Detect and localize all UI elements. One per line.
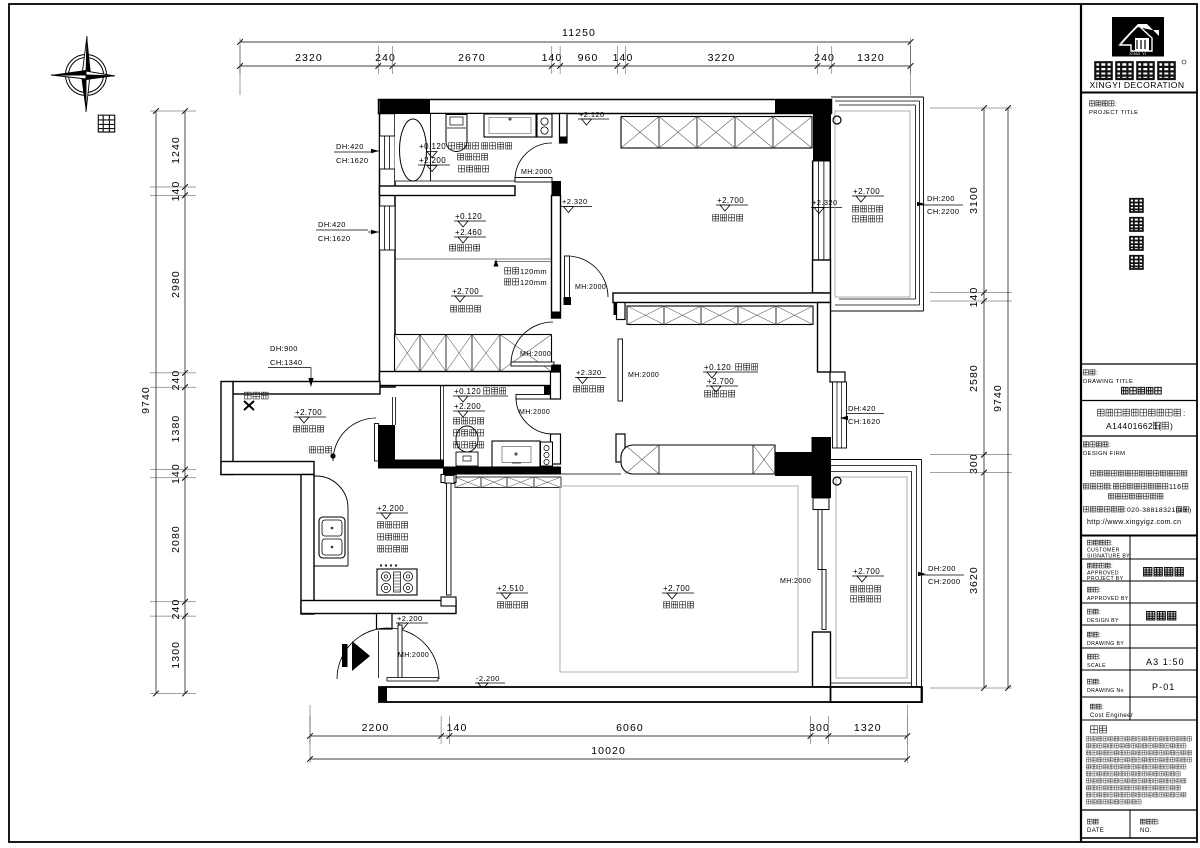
svg-text:PROJECT BY: PROJECT BY — [1087, 576, 1124, 582]
svg-text::: : — [1109, 442, 1111, 449]
svg-text::: : — [1111, 541, 1113, 547]
svg-text:): ) — [1170, 421, 1173, 431]
svg-text:+0.120: +0.120 — [419, 142, 446, 151]
svg-text:3620: 3620 — [968, 566, 980, 594]
svg-text:2320: 2320 — [295, 52, 323, 64]
svg-text:140: 140 — [447, 722, 468, 734]
svg-text::: : — [1183, 409, 1186, 418]
svg-text:DH:900: DH:900 — [270, 344, 298, 353]
svg-text:9740: 9740 — [992, 384, 1004, 412]
svg-text:1240: 1240 — [170, 136, 182, 164]
svg-text:CH:1620: CH:1620 — [848, 417, 880, 426]
svg-text:+2.320: +2.320 — [562, 197, 588, 206]
svg-text::: : — [1099, 633, 1101, 639]
svg-text:300: 300 — [809, 722, 830, 734]
svg-text:+2.700: +2.700 — [295, 408, 322, 417]
svg-text:140: 140 — [613, 52, 634, 64]
svg-text:MH:2000: MH:2000 — [398, 652, 429, 659]
svg-text:A3 1:50: A3 1:50 — [1146, 657, 1185, 667]
svg-text::: : — [1096, 370, 1098, 377]
svg-text:+0.120: +0.120 — [454, 387, 481, 396]
svg-text:+2.200: +2.200 — [397, 614, 423, 623]
svg-text:+0.120: +0.120 — [704, 363, 731, 372]
svg-text:11250: 11250 — [562, 27, 596, 39]
svg-text:+2.460: +2.460 — [455, 228, 482, 237]
svg-text:P-01: P-01 — [1152, 682, 1175, 692]
svg-text:1380: 1380 — [170, 415, 182, 443]
svg-text:020-38818321(10: 020-38818321(10 — [1127, 507, 1187, 514]
svg-text:): ) — [1189, 507, 1192, 514]
svg-text:+2.700: +2.700 — [717, 196, 744, 205]
svg-text:DRAWING BY: DRAWING BY — [1087, 641, 1124, 647]
svg-text:+2.700: +2.700 — [853, 567, 880, 576]
svg-text:140: 140 — [170, 463, 182, 484]
svg-text:MH:2000: MH:2000 — [628, 372, 659, 379]
svg-text:3220: 3220 — [708, 52, 736, 64]
svg-text:120mm: 120mm — [520, 278, 547, 287]
svg-text:116: 116 — [1169, 484, 1181, 491]
svg-text:+2.700: +2.700 — [707, 377, 734, 386]
svg-text:DESIGN FIRM: DESIGN FIRM — [1083, 451, 1125, 457]
svg-text:-2.200: -2.200 — [476, 674, 500, 683]
svg-text:DH:420: DH:420 — [318, 220, 346, 229]
svg-text::: : — [1099, 588, 1101, 594]
svg-text:6060: 6060 — [616, 722, 644, 734]
svg-text:+2.320: +2.320 — [576, 368, 602, 377]
svg-text::: : — [1111, 564, 1113, 570]
svg-text:MH:2000: MH:2000 — [575, 284, 606, 291]
svg-text:120mm: 120mm — [520, 267, 547, 276]
svg-text::: : — [1158, 820, 1160, 826]
svg-text::: : — [1099, 610, 1101, 616]
svg-text:9740: 9740 — [140, 386, 152, 414]
svg-text:SIGNATURE BY: SIGNATURE BY — [1087, 554, 1130, 560]
svg-text::: : — [1099, 655, 1101, 661]
svg-text::: : — [1124, 507, 1126, 514]
svg-text:+2.700: +2.700 — [663, 584, 690, 593]
svg-text:3100: 3100 — [968, 186, 980, 214]
svg-text:1300: 1300 — [170, 641, 182, 669]
svg-text:CH:1620: CH:1620 — [336, 156, 368, 165]
svg-text:DH:420: DH:420 — [848, 404, 876, 413]
svg-text:+2.320: +2.320 — [812, 198, 838, 207]
svg-text:+2.510: +2.510 — [497, 584, 524, 593]
svg-text:SCALE: SCALE — [1087, 663, 1106, 669]
svg-text:CH:2200: CH:2200 — [927, 207, 959, 216]
svg-text:DRAWING TITLE: DRAWING TITLE — [1083, 379, 1133, 385]
svg-text:DESIGN BY: DESIGN BY — [1087, 618, 1119, 624]
svg-text:2980: 2980 — [170, 270, 182, 298]
svg-text:CH:1340: CH:1340 — [270, 358, 302, 367]
svg-text:MH:2000: MH:2000 — [780, 578, 811, 585]
svg-text:+2.700: +2.700 — [853, 187, 880, 196]
svg-text::: : — [1115, 101, 1117, 108]
svg-text:+2.200: +2.200 — [419, 156, 446, 165]
svg-text:300: 300 — [968, 453, 980, 474]
svg-text:MH:2000: MH:2000 — [519, 409, 550, 416]
svg-text:960: 960 — [578, 52, 599, 64]
svg-text:+2.120: +2.120 — [579, 110, 605, 119]
svg-text:DH:200: DH:200 — [928, 564, 956, 573]
svg-text:APPROVED BY: APPROVED BY — [1087, 596, 1129, 602]
svg-text::: : — [1110, 484, 1112, 491]
svg-text:http://www.xingyigz.com.cn: http://www.xingyigz.com.cn — [1087, 519, 1181, 526]
svg-text:+2.200: +2.200 — [377, 504, 404, 513]
svg-text:2670: 2670 — [458, 52, 486, 64]
svg-text:140: 140 — [170, 181, 182, 202]
svg-text:CH:1620: CH:1620 — [318, 234, 350, 243]
svg-text:1320: 1320 — [857, 52, 885, 64]
svg-text:2200: 2200 — [362, 722, 390, 734]
svg-text:DRAWING No: DRAWING No — [1087, 688, 1124, 694]
svg-text::: : — [1102, 705, 1104, 711]
svg-text:2580: 2580 — [968, 364, 980, 392]
svg-text:10020: 10020 — [591, 745, 626, 757]
svg-text:140: 140 — [968, 287, 980, 308]
svg-text:DH:420: DH:420 — [336, 142, 364, 151]
svg-text:MH:2000: MH:2000 — [520, 351, 551, 358]
svg-text:2080: 2080 — [170, 525, 182, 553]
svg-text:+2.200: +2.200 — [454, 402, 481, 411]
svg-text:+0.120: +0.120 — [455, 212, 482, 221]
svg-text:A144016621(: A144016621( — [1106, 421, 1161, 431]
svg-text:DATE: DATE — [1087, 828, 1104, 834]
svg-text:+2.700: +2.700 — [452, 287, 479, 296]
svg-text:MH:2000: MH:2000 — [521, 169, 552, 176]
svg-text:PROJECT TITLE: PROJECT TITLE — [1089, 110, 1138, 116]
svg-text:XINGYI DECORATION: XINGYI DECORATION — [1090, 80, 1185, 90]
svg-text:Cost Engineer: Cost Engineer — [1090, 713, 1133, 719]
svg-text:CH:2000: CH:2000 — [928, 577, 960, 586]
svg-text:XING YI: XING YI — [1129, 51, 1146, 56]
svg-text::: : — [1099, 680, 1101, 686]
svg-text:DH:200: DH:200 — [927, 194, 955, 203]
svg-text:1320: 1320 — [854, 722, 882, 734]
svg-text:NO.: NO. — [1140, 828, 1152, 834]
